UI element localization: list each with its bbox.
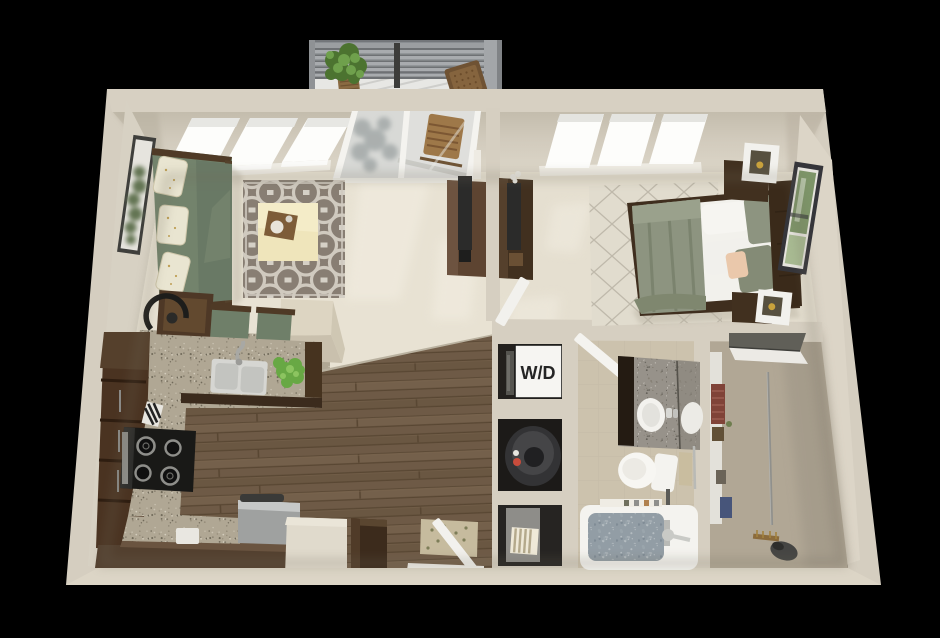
svg-text:W/D: W/D bbox=[521, 363, 556, 383]
